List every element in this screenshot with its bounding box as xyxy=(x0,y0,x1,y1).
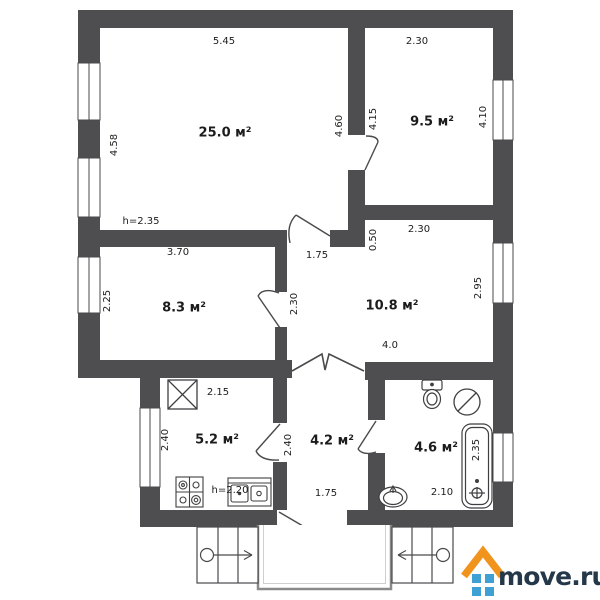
dimension-label: 2.30 xyxy=(290,293,300,315)
ventilation-shaft-icon xyxy=(168,380,197,409)
room-area-label: 10.8 м² xyxy=(366,300,419,313)
door-swing-icon xyxy=(365,136,378,170)
floor-plan-drawing xyxy=(0,0,600,600)
room-area-label: 4.2 м² xyxy=(310,435,354,448)
window-icon xyxy=(493,433,513,482)
room-area-label: 25.0 м² xyxy=(199,127,252,140)
dimension-label: 4.0 xyxy=(382,341,398,351)
room-area-label: 8.3 м² xyxy=(162,302,206,315)
window-icon xyxy=(78,158,100,217)
dimension-label: 2.95 xyxy=(474,277,484,299)
dimension-label: 2.25 xyxy=(103,290,113,312)
window-icon xyxy=(78,63,100,120)
door-swing-icon xyxy=(256,424,280,460)
dimension-label: 2.40 xyxy=(284,434,294,456)
ceiling-height-label: h=2.35 xyxy=(123,217,160,227)
window-icon xyxy=(493,243,513,303)
room-area-label: 5.2 м² xyxy=(195,434,239,447)
window-icon xyxy=(140,408,160,487)
entry-stairs-right-icon xyxy=(392,527,453,583)
bathtub-icon xyxy=(462,424,492,508)
toilet-icon xyxy=(422,380,442,409)
wall-opening-icon xyxy=(292,354,364,371)
dimension-label: 4.10 xyxy=(479,106,489,128)
dimension-label: 5.45 xyxy=(213,37,235,47)
washing-machine-icon xyxy=(454,389,480,415)
wash-basin-icon xyxy=(379,486,407,507)
door-swing-icon xyxy=(289,215,330,243)
door-swing-icon xyxy=(358,421,376,453)
window-icon xyxy=(493,80,513,140)
porch-icon xyxy=(258,525,391,589)
dimension-label: 4.60 xyxy=(335,115,345,137)
dimension-label: 1.75 xyxy=(315,489,337,499)
dimension-label: 2.30 xyxy=(408,225,430,235)
dimension-label: 2.35 xyxy=(472,439,482,461)
dimension-label: 0.50 xyxy=(369,229,379,251)
dimension-label: 2.30 xyxy=(406,37,428,47)
room-area-label: 9.5 м² xyxy=(410,116,454,129)
dimension-label: 4.58 xyxy=(110,134,120,156)
dimension-label: 2.40 xyxy=(161,429,171,451)
dimension-label: 2.10 xyxy=(431,488,453,498)
move-ru-watermark: move.ru xyxy=(498,564,600,589)
dimension-label: 3.70 xyxy=(167,248,189,258)
dimension-label: 2.15 xyxy=(207,388,229,398)
window-icon xyxy=(78,257,100,313)
dimension-label: 1.75 xyxy=(306,251,328,261)
door-swing-icon xyxy=(258,291,280,328)
floor-plan: 25.0 м² 9.5 м² 8.3 м² 10.8 м² 5.2 м² 4.2… xyxy=(0,0,600,600)
move-ru-house-logo-icon xyxy=(464,552,502,597)
room-area-label: 4.6 м² xyxy=(414,442,458,455)
ceiling-height-label: h=2.20 xyxy=(212,486,249,496)
entry-stairs-left-icon xyxy=(197,527,258,583)
stove-icon xyxy=(176,477,203,507)
dimension-label: 4.15 xyxy=(369,108,379,130)
